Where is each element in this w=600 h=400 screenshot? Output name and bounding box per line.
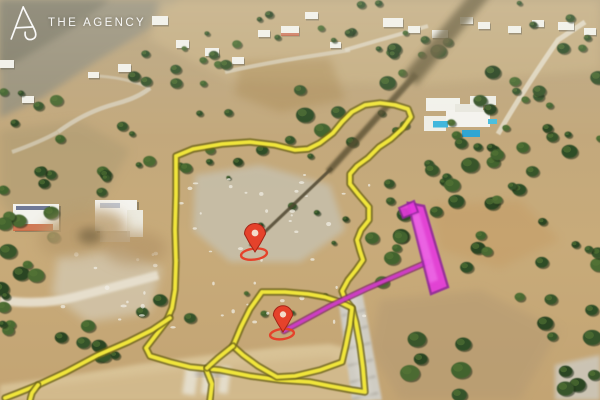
- brand-name: THE AGENCY: [48, 17, 146, 29]
- watermark-logo: THE AGENCY: [8, 5, 146, 41]
- aerial-photo: THE AGENCY: [0, 0, 600, 400]
- agency-a-monogram-icon: [8, 5, 40, 41]
- terrain-and-overlays: [0, 0, 600, 400]
